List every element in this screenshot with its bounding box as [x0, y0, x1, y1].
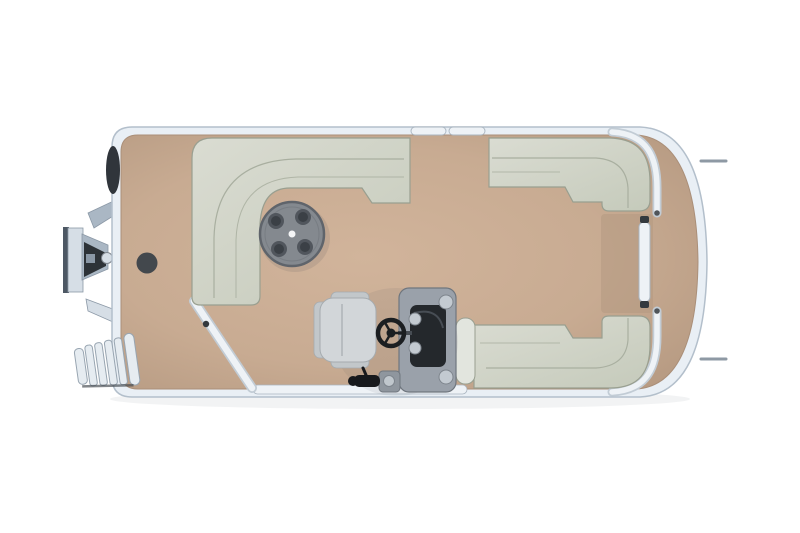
chair-seat-cushion	[320, 298, 376, 362]
console-speaker-top	[439, 295, 453, 309]
pontoon-floorplan-render	[0, 0, 800, 533]
motor-clamp-notch	[86, 254, 95, 263]
table-center-cap	[289, 231, 296, 238]
throttle-dial	[384, 376, 395, 387]
helm-console	[399, 288, 456, 392]
lounge-armrest-bolster	[456, 318, 475, 384]
motor-transom-plate	[68, 228, 83, 292]
cupholder-well	[271, 216, 281, 226]
bow-starboard-lounge	[456, 316, 650, 388]
top-gate-rail-segment	[449, 127, 485, 135]
bow-starboard-lounge-seat	[474, 316, 650, 388]
throttle-knob	[348, 376, 358, 386]
bow-fence-post	[654, 210, 660, 216]
top-gate-rail-segment	[411, 127, 446, 135]
motor-pivot-cap	[102, 253, 113, 264]
console-speaker-bottom	[439, 370, 453, 384]
bow-gate-door	[639, 222, 650, 302]
bow-fence-post	[654, 308, 660, 314]
deck-table-base-plug	[137, 253, 158, 274]
cupholder-well	[298, 212, 308, 222]
windshield-knob	[409, 313, 421, 325]
windshield-knob	[409, 342, 421, 354]
bow-gate-hinge	[640, 216, 649, 223]
captain-chair	[314, 292, 376, 368]
wheel-hub	[387, 329, 396, 338]
motor-cowl-tip	[106, 146, 120, 194]
cupholder-well	[274, 244, 284, 254]
bow-gate-hinge	[640, 301, 649, 308]
cupholder-well	[300, 242, 310, 252]
stern-gate-hinge	[203, 321, 209, 327]
